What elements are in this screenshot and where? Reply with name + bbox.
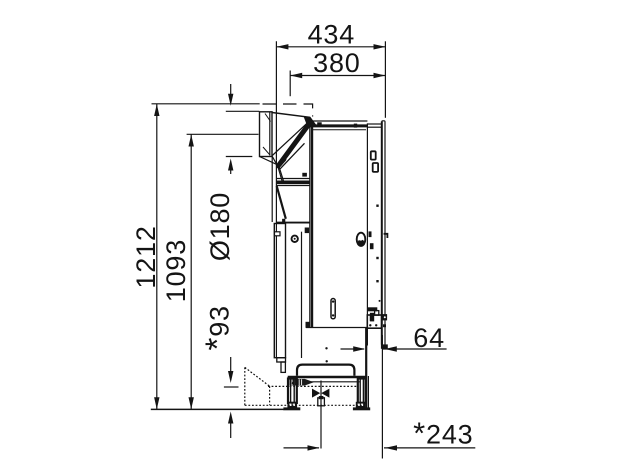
svg-text:*243: *243 bbox=[413, 415, 473, 450]
svg-text:380: 380 bbox=[313, 48, 360, 78]
svg-text:434: 434 bbox=[308, 20, 355, 50]
svg-text:1093: 1093 bbox=[161, 239, 191, 302]
svg-text:*93: *93 bbox=[199, 305, 236, 350]
svg-text:Ø180: Ø180 bbox=[205, 192, 235, 261]
